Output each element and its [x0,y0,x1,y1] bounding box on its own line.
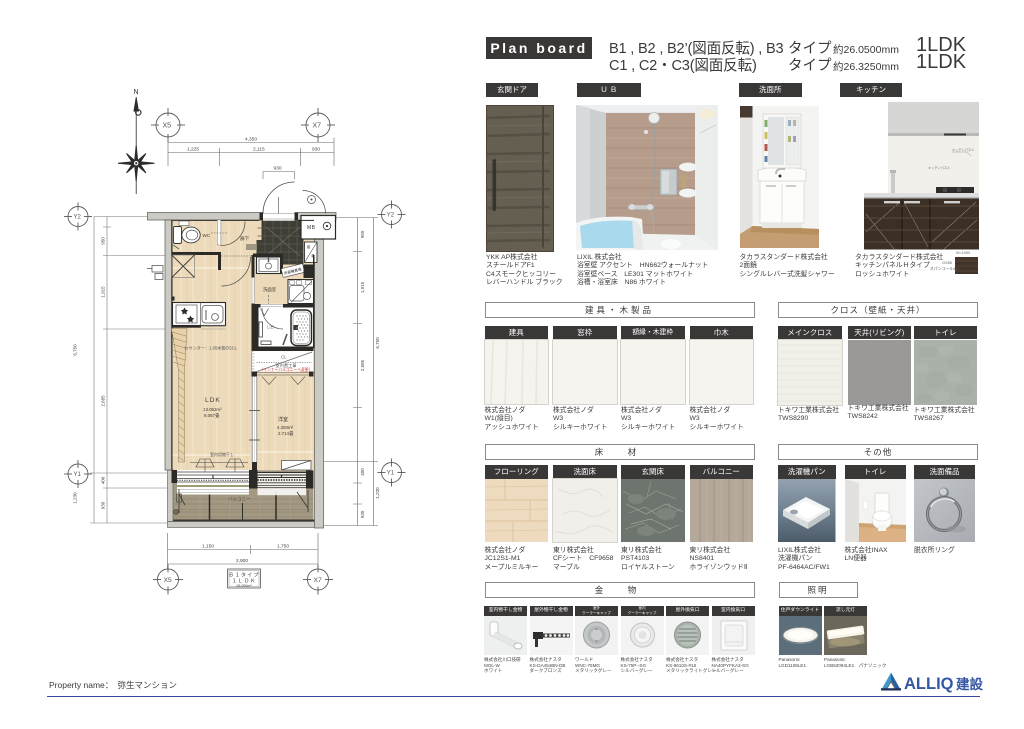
svg-text:400: 400 [360,468,365,476]
svg-text:2,115: 2,115 [253,147,265,153]
svg-text:X5: X5 [164,577,173,584]
svg-text:930: 930 [274,166,282,172]
svg-text:洗面室: 洗面室 [263,286,277,293]
svg-text:バルコニー: バルコニー [228,497,251,502]
svg-text:26.050m²: 26.050m² [236,584,252,588]
svg-text:（インナーバルコニーへ変更）: （インナーバルコニーへ変更） [259,367,312,372]
svg-text:CL: CL [281,355,287,360]
svg-text:建設: 建設 [955,676,984,692]
svg-text:950: 950 [360,230,365,238]
svg-text:2,685: 2,685 [101,395,106,407]
svg-text:2.714畳: 2.714畳 [278,431,294,436]
svg-text:X7: X7 [314,577,323,584]
svg-text:WC: WC [203,233,211,238]
svg-text:930: 930 [101,501,106,509]
svg-text:2,900: 2,900 [236,558,248,564]
svg-text:Y2: Y2 [387,213,395,219]
svg-text:キッチンパネル: キッチンパネル [928,165,951,170]
svg-text:13.052m²: 13.052m² [203,407,222,412]
svg-text:1,225: 1,225 [187,147,199,153]
svg-text:2,685: 2,685 [360,359,365,371]
svg-text:930: 930 [312,147,320,153]
svg-text:930: 930 [360,510,365,518]
svg-text:Y1: Y1 [74,472,82,478]
svg-text:Y1: Y1 [387,471,395,477]
svg-text:6,750: 6,750 [375,337,380,349]
svg-text:UB: UB [267,325,275,331]
svg-text:洋室: 洋室 [278,416,288,423]
svg-text:X7: X7 [313,123,322,130]
svg-text:1,150: 1,150 [202,544,214,550]
svg-text:LDK: LDK [205,397,221,404]
svg-text:4,350: 4,350 [245,137,257,143]
svg-text:Y2: Y2 [74,215,82,221]
svg-text:6,750: 6,750 [73,344,78,356]
svg-text:廊下: 廊下 [240,235,250,242]
svg-text:MB: MB [307,225,316,231]
svg-text:1,230: 1,230 [375,487,380,499]
svg-text:4.393m²: 4.393m² [277,425,294,430]
svg-text:キッチンパネル: キッチンパネル [952,147,975,152]
svg-text:N: N [134,89,139,96]
svg-text:8.067畳: 8.067畳 [204,413,220,418]
svg-text:室内用物干し: 室内用物干し [210,451,234,457]
svg-text:1,230: 1,230 [73,492,78,504]
svg-text:400: 400 [101,476,106,484]
svg-text:1,915: 1,915 [360,281,365,293]
svg-text:ALLIQ: ALLIQ [904,675,954,693]
svg-text:カウンター：1.05木製OSCL: カウンター：1.05木製OSCL [184,345,238,352]
svg-text:1,750: 1,750 [277,544,289,550]
svg-text:X5: X5 [163,123,172,130]
svg-text:Ｂ１タイプ: Ｂ１タイプ [229,571,260,579]
svg-text:1,915: 1,915 [101,286,106,298]
svg-text:950: 950 [101,237,106,245]
